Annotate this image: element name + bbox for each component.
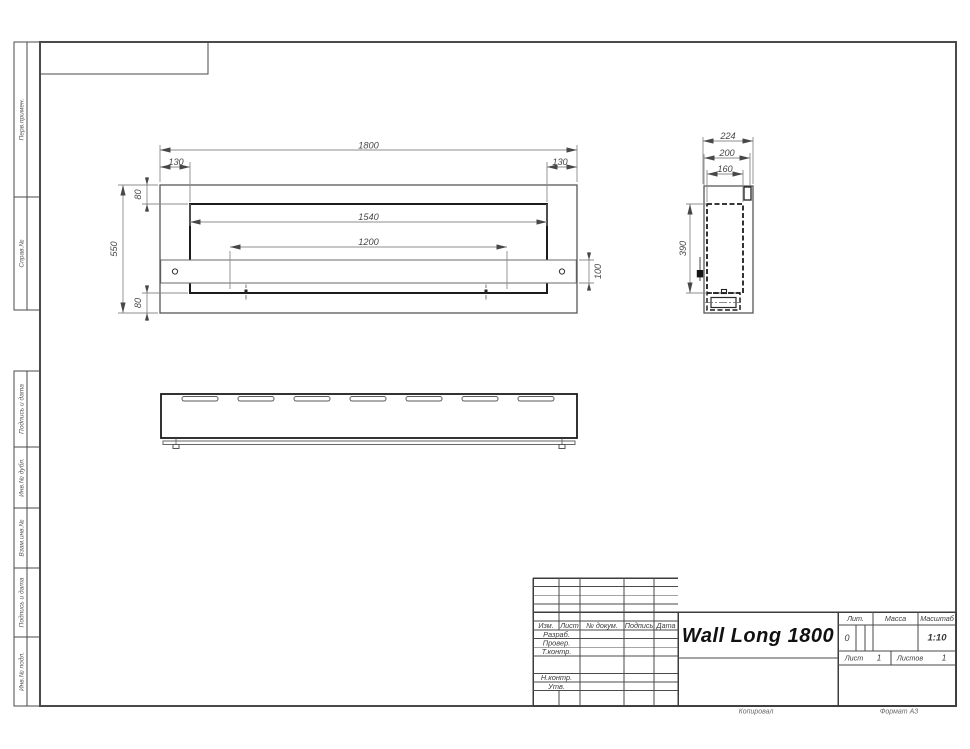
tb-row-utv: Утв. bbox=[547, 682, 565, 691]
side-firebox-hidden bbox=[707, 204, 743, 293]
footer-format-label: Формат А3 bbox=[880, 709, 918, 716]
tb-sheet-label: Лист bbox=[844, 654, 864, 663]
margin-top-dividers bbox=[14, 42, 40, 310]
side-view bbox=[697, 186, 753, 313]
dim-text-100: 100 bbox=[593, 263, 603, 279]
dim-text-1200: 1200 bbox=[358, 237, 379, 247]
vent-slot bbox=[462, 397, 498, 402]
tb-row-tkontr: Т.контр. bbox=[542, 647, 572, 656]
vent-slot bbox=[518, 397, 554, 402]
front-mount-bracket bbox=[161, 260, 577, 283]
margin-label-podpis-data-1: Подпись и дата bbox=[18, 384, 26, 434]
front-mount-point-right bbox=[485, 290, 488, 294]
top-view bbox=[161, 394, 577, 449]
front-view bbox=[160, 185, 577, 313]
title-block: Изм. Лист № докум. Подпись Дата Разраб. … bbox=[533, 578, 956, 706]
tb-col-podpis: Подпись bbox=[625, 621, 654, 630]
margin-column-top: Перв.примен. Справ.№ bbox=[14, 42, 40, 310]
dim-text-130-right: 130 bbox=[552, 157, 568, 167]
vent-slot bbox=[182, 397, 218, 402]
topview-tab-right bbox=[559, 445, 565, 449]
tb-col-izm: Изм. bbox=[538, 621, 553, 630]
tb-sheets-total: 1 bbox=[942, 654, 947, 663]
sheet-frame bbox=[40, 42, 956, 706]
tb-sheets-label: Листов bbox=[896, 654, 923, 663]
frame-border bbox=[40, 42, 956, 706]
document-title: Wall Long 1800 bbox=[682, 625, 834, 647]
dim-text-1800: 1800 bbox=[358, 141, 379, 151]
vent-slot bbox=[238, 397, 274, 402]
dim-text-200: 200 bbox=[718, 148, 735, 158]
dim-text-1540: 1540 bbox=[358, 212, 379, 222]
margin-label-podpis-data-2: Подпись и дата bbox=[18, 577, 26, 627]
tb-mass-label: Масса bbox=[885, 614, 906, 623]
front-hole-left bbox=[172, 269, 177, 274]
dim-text-80-bottom: 80 bbox=[133, 297, 143, 308]
footer-notes: Копировал Формат А3 bbox=[739, 709, 919, 716]
dim-text-80-top: 80 bbox=[133, 189, 143, 200]
tb-scale-label: Масштаб bbox=[920, 614, 955, 623]
margin-label-sprav-no: Справ.№ bbox=[19, 239, 26, 267]
tb-lit-label: Лит. bbox=[846, 614, 864, 623]
tb-sheet-number: 1 bbox=[877, 654, 882, 663]
vent-slot bbox=[406, 397, 442, 402]
front-mount-point-left bbox=[245, 290, 248, 294]
drawing-canvas: Перв.примен. Справ.№ Подпись и дата Инв.… bbox=[0, 0, 970, 749]
side-body-outline bbox=[704, 186, 753, 313]
topview-mount-rail bbox=[163, 441, 575, 445]
designation-stamp-box bbox=[40, 42, 208, 74]
vent-slot bbox=[350, 397, 386, 402]
margin-label-inv-podl: Инв.№ подл. bbox=[18, 652, 26, 691]
dim-text-160: 160 bbox=[717, 164, 733, 174]
dim-text-390: 390 bbox=[678, 240, 688, 256]
tb-col-list: Лист bbox=[559, 621, 579, 630]
topview-tab-left bbox=[173, 445, 179, 449]
front-outside-arrows bbox=[145, 178, 591, 321]
side-dimensions: 224 200 160 390 bbox=[678, 131, 753, 293]
tb-col-ndocum: № докум. bbox=[586, 621, 618, 630]
dim-text-130-left: 130 bbox=[168, 157, 184, 167]
margin-column-bottom: Подпись и дата Инв.№ дубл. Взам.инв.№ По… bbox=[14, 371, 40, 706]
margin-label-perv-primen: Перв.примен. bbox=[19, 98, 26, 140]
side-knob bbox=[697, 270, 703, 277]
dim-text-550: 550 bbox=[109, 240, 119, 256]
tb-scale-value: 1:10 bbox=[927, 633, 947, 644]
tb-lit-value: 0 bbox=[844, 633, 849, 643]
footer-copied-label: Копировал bbox=[739, 709, 774, 716]
topview-vent-slots bbox=[182, 397, 554, 402]
margin-label-vzam-inv: Взам.инв.№ bbox=[19, 519, 26, 556]
margin-label-inv-dubl: Инв.№ дубл. bbox=[18, 458, 26, 497]
side-top-bracket bbox=[744, 187, 751, 200]
drawing-sheet: Перв.примен. Справ.№ Подпись и дата Инв.… bbox=[0, 0, 970, 749]
vent-slot bbox=[294, 397, 330, 402]
dim-text-224: 224 bbox=[719, 131, 735, 141]
tb-col-data: Дата bbox=[656, 621, 676, 630]
front-hole-right bbox=[559, 269, 564, 274]
